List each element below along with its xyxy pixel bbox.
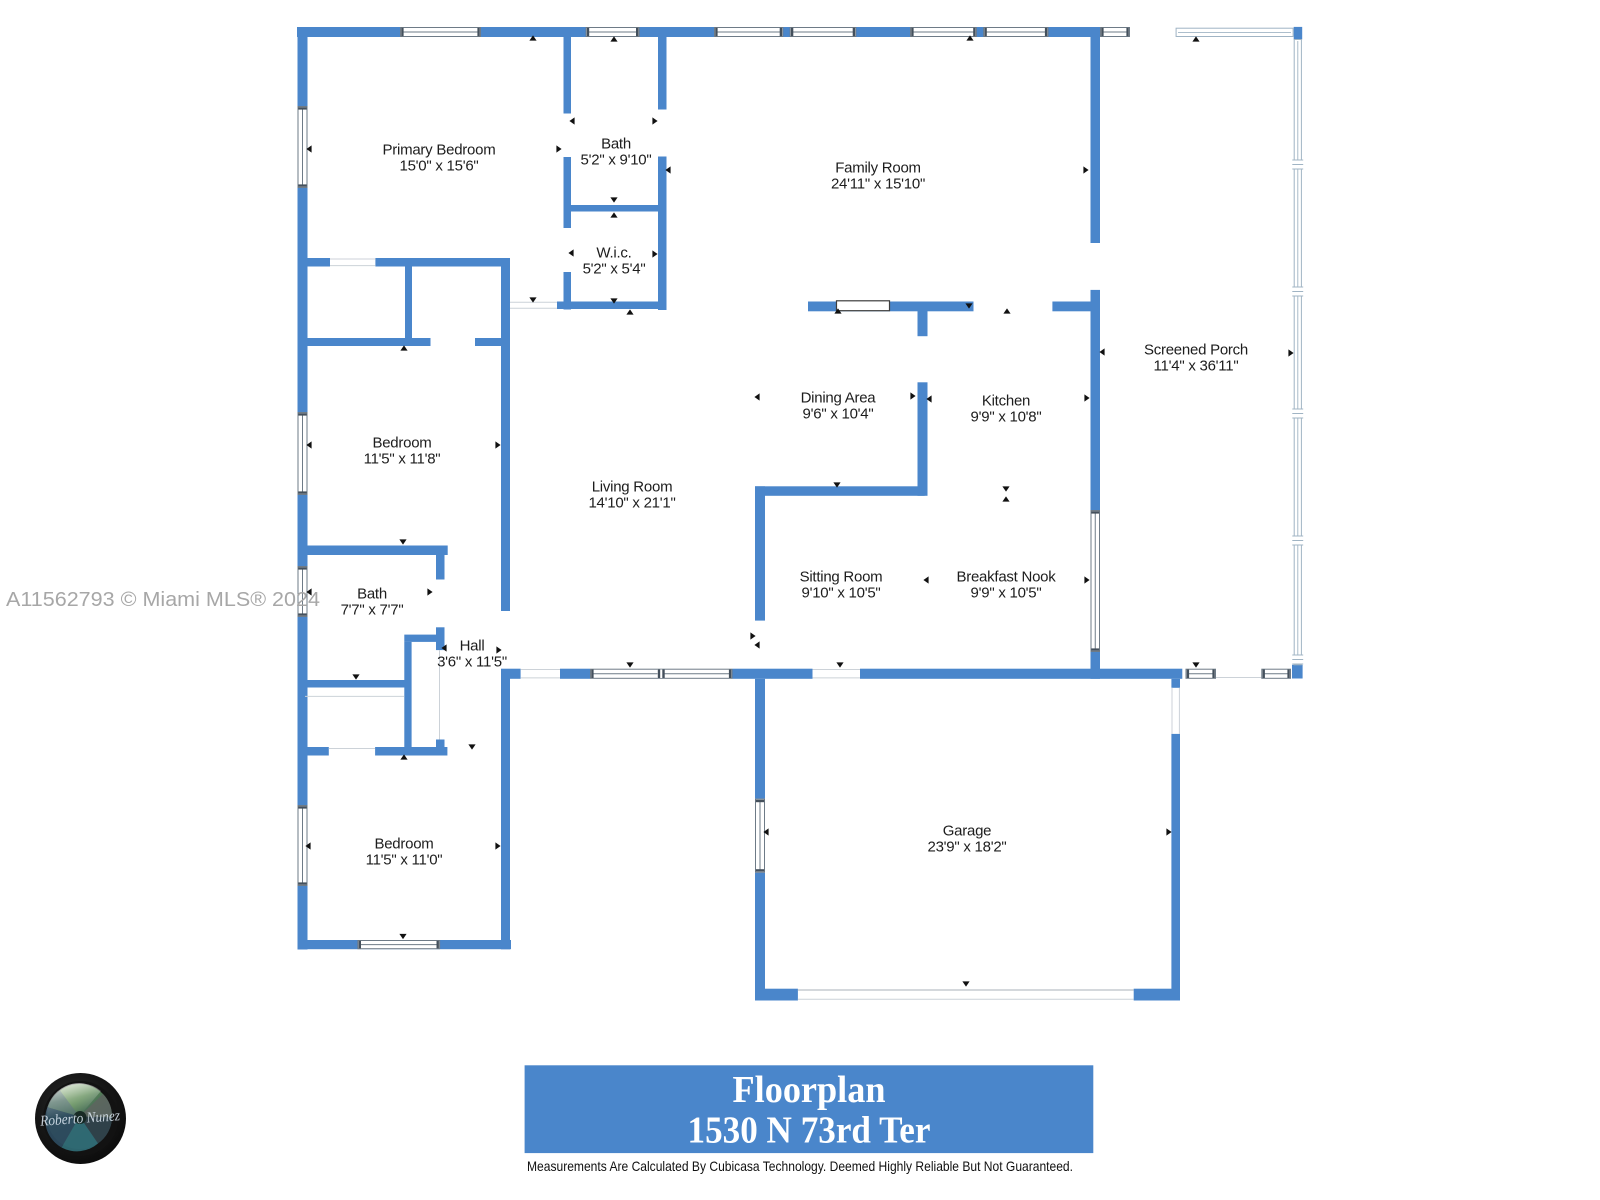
svg-text:9'10" x 10'5": 9'10" x 10'5"	[801, 585, 880, 602]
svg-text:9'9" x 10'8": 9'9" x 10'8"	[971, 409, 1042, 426]
svg-text:11'5" x 11'0": 11'5" x 11'0"	[366, 852, 443, 869]
svg-text:5'2" x 5'4": 5'2" x 5'4"	[583, 261, 646, 278]
svg-text:23'9" x 18'2": 23'9" x 18'2"	[927, 839, 1006, 856]
svg-text:Breakfast Nook: Breakfast Nook	[956, 569, 1056, 586]
svg-text:3'6" x 11'5": 3'6" x 11'5"	[437, 654, 507, 671]
svg-text:Floorplan: Floorplan	[733, 1069, 886, 1111]
svg-text:1530 N 73rd Ter: 1530 N 73rd Ter	[688, 1110, 931, 1152]
svg-text:Bedroom: Bedroom	[372, 435, 431, 452]
svg-text:Garage: Garage	[943, 823, 992, 840]
svg-text:Bath: Bath	[357, 586, 387, 603]
svg-text:Living Room: Living Room	[592, 479, 673, 496]
svg-text:Screened Porch: Screened Porch	[1144, 342, 1248, 359]
svg-text:5'2" x 9'10": 5'2" x 9'10"	[581, 152, 652, 169]
svg-text:Dining Area: Dining Area	[801, 390, 877, 407]
svg-text:11'4" x 36'11": 11'4" x 36'11"	[1154, 358, 1239, 375]
svg-text:Bedroom: Bedroom	[374, 836, 433, 853]
svg-text:9'6" x 10'4": 9'6" x 10'4"	[803, 406, 874, 423]
svg-text:Sitting Room: Sitting Room	[800, 569, 883, 586]
svg-text:7'7" x 7'7": 7'7" x 7'7"	[341, 602, 404, 619]
svg-text:24'11" x 15'10": 24'11" x 15'10"	[831, 176, 925, 193]
svg-text:W.i.c.: W.i.c.	[596, 245, 631, 262]
svg-text:Kitchen: Kitchen	[982, 393, 1030, 410]
svg-text:Primary Bedroom: Primary Bedroom	[383, 142, 496, 159]
svg-text:Bath: Bath	[601, 136, 631, 153]
svg-text:11'5" x 11'8": 11'5" x 11'8"	[364, 451, 441, 468]
svg-text:15'0" x 15'6": 15'0" x 15'6"	[399, 158, 478, 175]
svg-text:14'10" x 21'1": 14'10" x 21'1"	[588, 495, 675, 512]
svg-text:9'9" x 10'5": 9'9" x 10'5"	[971, 585, 1042, 602]
svg-text:Hall: Hall	[460, 638, 485, 655]
svg-text:A11562793 © Miami MLS® 2024: A11562793 © Miami MLS® 2024	[6, 588, 320, 611]
svg-text:Family Room: Family Room	[835, 160, 921, 177]
svg-text:Measurements Are Calculated By: Measurements Are Calculated By Cubicasa …	[527, 1158, 1073, 1174]
